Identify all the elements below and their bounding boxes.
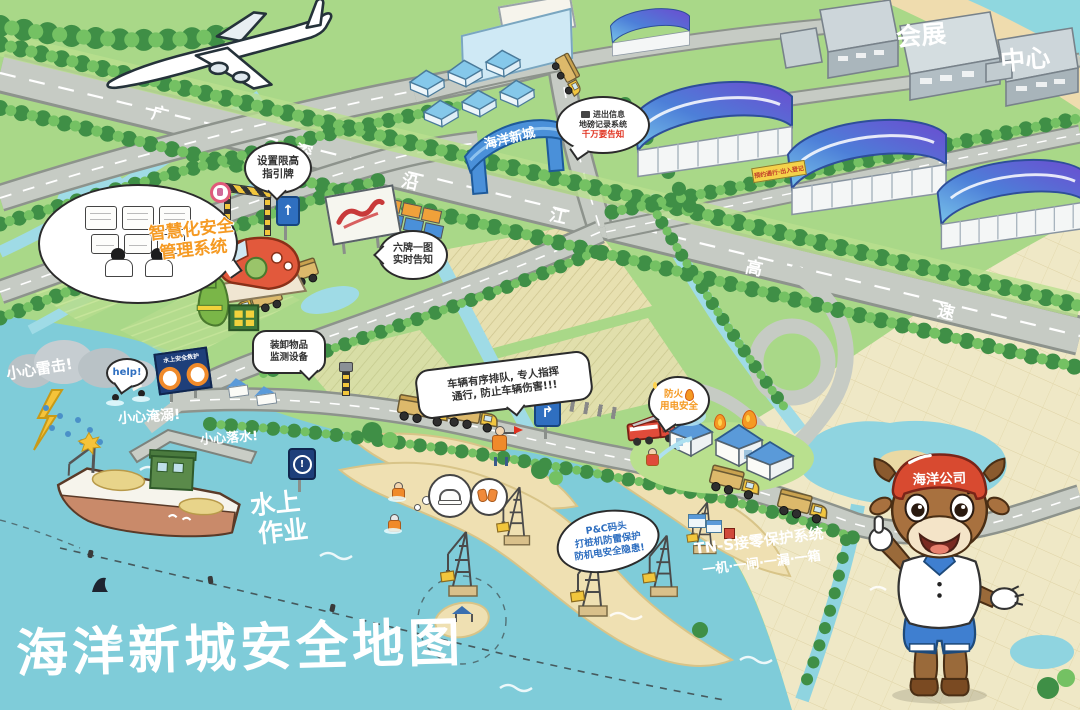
device-bubble: 装卸物品监测设备 xyxy=(252,330,326,374)
life-ring-icon xyxy=(185,362,210,388)
flame-icon xyxy=(714,414,726,430)
life-ring-icon xyxy=(157,365,182,391)
restriction-sign xyxy=(210,182,231,203)
monitor-screen xyxy=(85,206,117,230)
map-title: 海洋新城安全地图 xyxy=(15,600,465,687)
caution-sign: ! xyxy=(288,448,316,480)
fire-safety-line1: 防火 xyxy=(664,389,694,401)
shed-6 xyxy=(497,75,537,110)
falling-warning-text: 小心落水! xyxy=(199,425,258,448)
illustrated-safety-map: 广 深 沿 江 高 速 xyxy=(0,0,1080,710)
house-3 xyxy=(744,438,796,482)
airplane-icon xyxy=(97,0,352,118)
weighbridge-icon xyxy=(581,111,590,118)
thought-dot xyxy=(414,504,421,511)
dock-hut xyxy=(706,520,722,533)
billboard-art xyxy=(327,187,395,239)
glove-icon xyxy=(487,488,499,503)
derrick-crane xyxy=(440,524,484,604)
expo-label-2: 中心 xyxy=(999,38,1052,78)
monitoring-device-pole xyxy=(342,368,350,396)
six-boards-bubble: 六牌一图实时告知 xyxy=(378,230,448,280)
monitoring-camera xyxy=(339,362,353,372)
operator-figure xyxy=(103,248,133,278)
height-sign-bubble: 设置限高指引牌 xyxy=(244,142,312,194)
warehouse-4 xyxy=(590,0,710,60)
exclaim-icon: ! xyxy=(293,455,312,474)
dock-hut xyxy=(688,514,706,528)
water-work-text-2: 作业 xyxy=(256,509,310,550)
arrow-up-icon: ↑ xyxy=(282,203,294,219)
shed-2 xyxy=(445,55,485,90)
traffic-director xyxy=(492,426,508,470)
flame-icon xyxy=(742,410,757,429)
tent-1 xyxy=(225,377,249,398)
shed-1 xyxy=(407,65,447,100)
mascot-helmet-text: 海洋公司 xyxy=(912,469,966,488)
gloves-thought-bubble xyxy=(470,478,508,516)
buoy xyxy=(207,576,213,585)
mascot-cow: 海洋公司 xyxy=(852,448,1027,706)
tent-2 xyxy=(253,385,277,406)
hardhat-icon xyxy=(439,489,461,504)
rescue-board: 水上安全救护 xyxy=(153,346,212,395)
warehouse-3 xyxy=(932,140,1080,260)
warehouse-2 xyxy=(782,100,952,225)
flame-icon xyxy=(685,389,694,401)
glove-icon xyxy=(477,488,489,503)
shed-3 xyxy=(483,45,523,80)
weighbridge-bubble: 进出信息 地磅记录系统 千万要告知 xyxy=(556,96,650,154)
expo-label-1: 会展 xyxy=(895,14,948,54)
hardhat-thought-bubble xyxy=(428,474,472,518)
shed-4 xyxy=(421,95,461,130)
help-bubble: help! xyxy=(106,358,148,388)
